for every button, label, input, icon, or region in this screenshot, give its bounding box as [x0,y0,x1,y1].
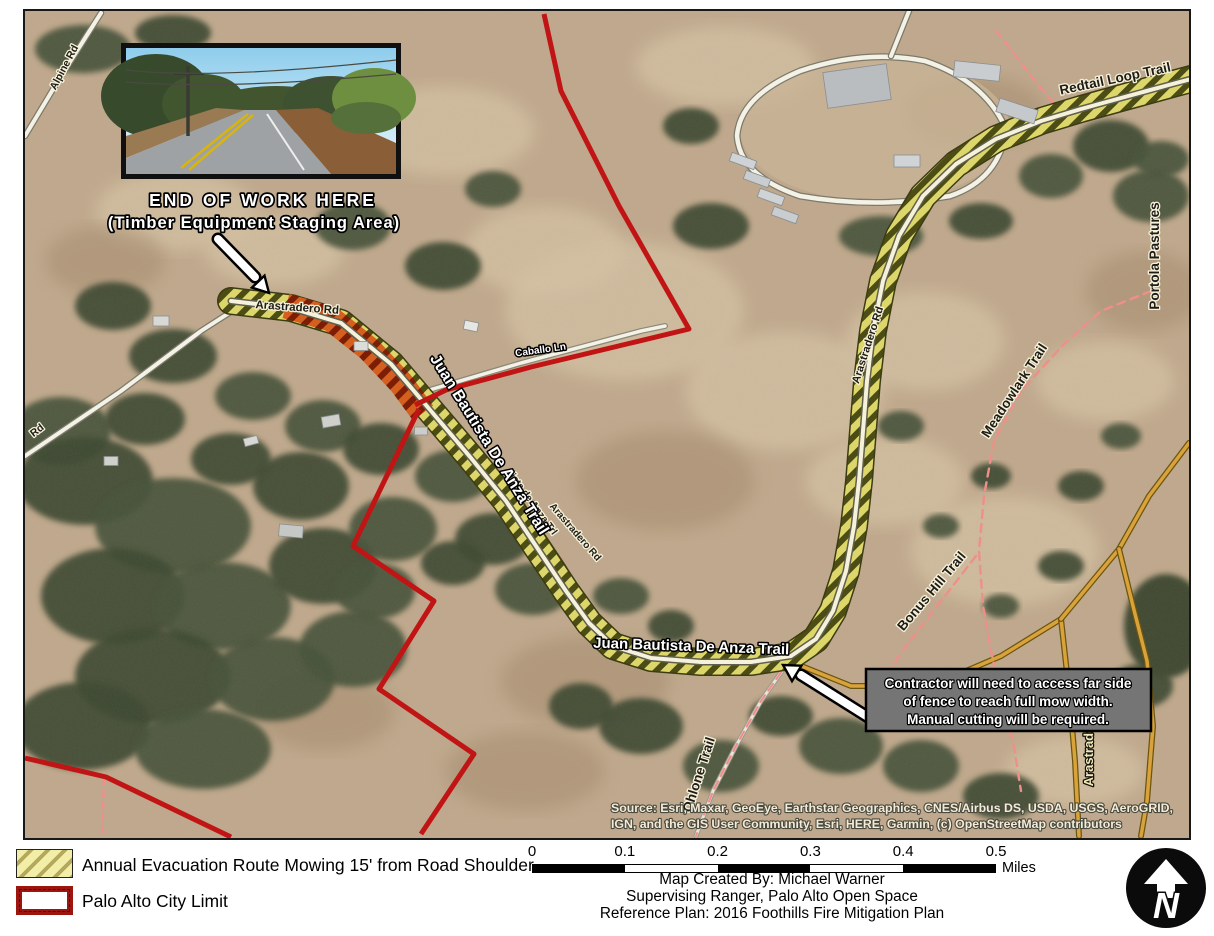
building [104,457,118,466]
credit-author: Map Created By: Michael Warner [600,871,944,888]
end-of-work-line1: END OF WORK HERE [149,190,377,210]
attribution-line2: IGN, and the GIS User Community, Esri, H… [611,817,1122,831]
contractor-note-line2: of fence to reach full mow width. [903,694,1112,709]
contractor-note-line3: Manual cutting will be required. [907,712,1109,727]
inset-right-bushes [331,102,401,134]
building [354,342,368,351]
label-portola-pastures: Portola Pastures [1147,202,1162,309]
end-of-work-line2: (Timber Equipment Staging Area) [108,214,400,232]
contractor-note-line1: Contractor will need to access far side [885,676,1132,691]
credit-reference: Reference Plan: 2016 Foothills Fire Miti… [600,905,944,922]
scale-tick-0: 0 [528,843,536,860]
building [894,155,920,167]
building [153,316,169,326]
inset-photo [101,43,416,179]
legend-label-mow-route: Annual Evacuation Route Mowing 15' from … [82,855,534,876]
scale-tick-0-3: 0.3 [800,843,821,860]
scale-tick-0-4: 0.4 [893,843,914,860]
map-canvas: Alpine Rd Rd Arastradero Rd Caballo Ln i… [23,9,1191,840]
scale-tick-0-1: 0.1 [614,843,635,860]
legend-label-city-limit: Palo Alto City Limit [82,891,228,912]
map-credits: Map Created By: Michael Warner Supervisi… [600,871,944,922]
north-arrow: N [1124,846,1208,930]
scale-tick-0-5: 0.5 [986,843,1007,860]
building [415,427,428,435]
north-arrow-letter: N [1153,885,1180,926]
city-limit-swatch [16,886,73,915]
building [279,524,304,538]
scale-tick-0-2: 0.2 [707,843,728,860]
map-document: Alpine Rd Rd Arastradero Rd Caballo Ln i… [0,0,1214,936]
credit-title: Supervising Ranger, Palo Alto Open Space [600,888,944,905]
scale-unit-label: Miles [1002,860,1036,876]
mow-route-swatch [16,849,73,878]
map-svg: Alpine Rd Rd Arastradero Rd Caballo Ln i… [25,11,1189,838]
attribution-line1: Source: Esri, Maxar, GeoEye, Earthstar G… [611,801,1173,815]
